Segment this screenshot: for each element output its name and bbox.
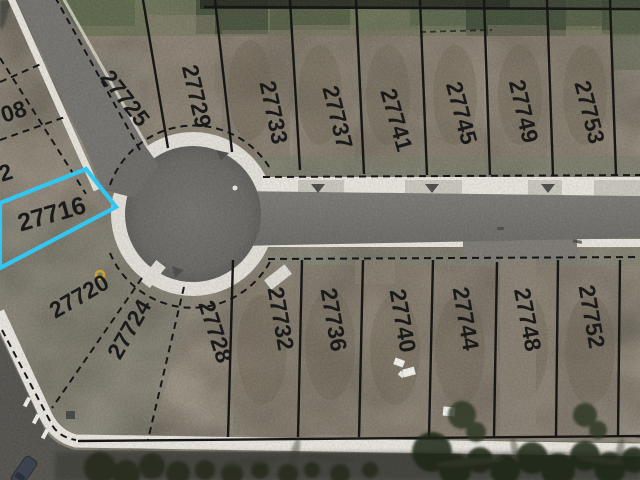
parcel-map-canvas[interactable]: 27725 27729 27733 27737 27741 27745 2774…: [0, 0, 640, 480]
aerial-parcel-map[interactable]: 27725 27729 27733 27737 27741 27745 2774…: [0, 0, 640, 480]
